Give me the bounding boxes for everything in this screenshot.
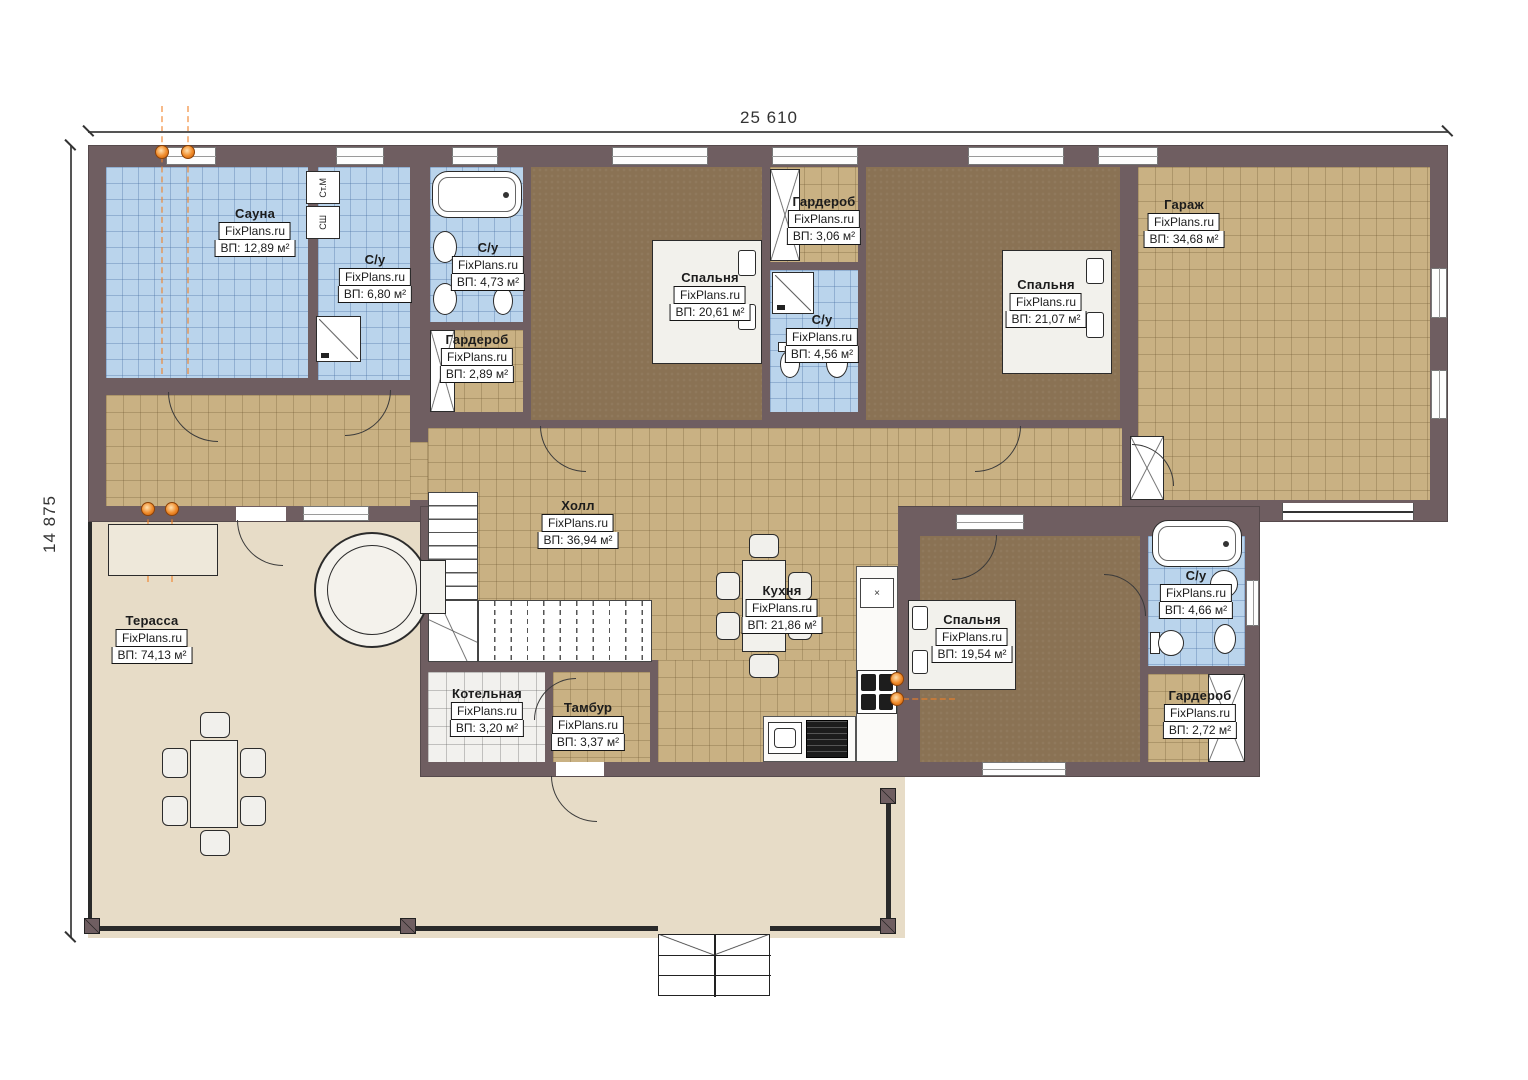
terrace-railing <box>88 522 92 934</box>
area-box: ВП: 4,73 м² <box>451 274 525 291</box>
step-arrow <box>658 934 714 955</box>
window <box>1246 580 1259 626</box>
room-name: Гараж <box>1144 197 1225 212</box>
room-label-kitchen: Кухня FixPlans.ru ВП: 21,86 м² <box>742 583 823 634</box>
area-box: ВП: 21,07 м² <box>1006 311 1087 328</box>
room-label-bedroom-3: Спальня FixPlans.ru ВП: 19,54 м² <box>932 612 1013 663</box>
room-name: Кухня <box>742 583 823 598</box>
shower-tray <box>772 272 814 314</box>
pillow <box>1086 312 1104 338</box>
dimension-line-left <box>70 145 72 938</box>
area-box: ВП: 3,06 м² <box>787 228 861 245</box>
brand-box: FixPlans.ru <box>788 210 860 228</box>
kitchen-sink <box>768 722 802 754</box>
hot-tub <box>314 532 430 648</box>
window <box>956 514 1024 530</box>
area-box: ВП: 12,89 м² <box>215 240 296 257</box>
brand-box: FixPlans.ru <box>219 222 291 240</box>
area-box: ВП: 3,20 м² <box>450 720 524 737</box>
room-name: Терасса <box>112 613 193 628</box>
chair <box>162 748 188 778</box>
toilet-bowl <box>493 287 513 315</box>
heater-icon <box>890 672 904 686</box>
room-label-su-3: С/у FixPlans.ru ВП: 4,56 м² <box>785 312 859 363</box>
window <box>336 147 384 165</box>
terrace-railing <box>886 798 891 930</box>
room-name: Спальня <box>932 612 1013 627</box>
bathtub <box>432 171 522 218</box>
room-label-wardrobe-2: Гардероб FixPlans.ru ВП: 3,06 м² <box>787 194 861 245</box>
chair <box>200 830 230 856</box>
chair <box>749 654 779 678</box>
room-label-su-4: С/у FixPlans.ru ВП: 4,66 м² <box>1159 568 1233 619</box>
dryer-label: СШ <box>319 215 328 230</box>
area-box: ВП: 3,37 м² <box>551 734 625 751</box>
railing-post <box>880 918 896 934</box>
dimension-height-label: 14 875 <box>40 495 60 553</box>
room-name: Котельная <box>450 686 524 701</box>
area-box: ВП: 19,54 м² <box>932 646 1013 663</box>
window <box>1098 147 1158 165</box>
room-label-bedroom-1: Спальня FixPlans.ru ВП: 20,61 м² <box>670 270 751 321</box>
heater-icon <box>165 502 179 516</box>
brand-box: FixPlans.ru <box>746 599 818 617</box>
brand-box: FixPlans.ru <box>451 702 523 720</box>
brand-box: FixPlans.ru <box>786 328 858 346</box>
room-label-garage: Гараж FixPlans.ru ВП: 34,68 м² <box>1144 197 1225 248</box>
chair <box>749 534 779 558</box>
room-label-sauna: Сауна FixPlans.ru ВП: 12,89 м² <box>215 206 296 257</box>
stairs-upper-flight <box>478 600 652 662</box>
room-name: С/у <box>785 312 859 327</box>
room-label-su-1: С/у FixPlans.ru ВП: 6,80 м² <box>338 252 412 303</box>
window <box>1431 268 1447 318</box>
heater-icon <box>155 145 169 159</box>
room-name: Гардероб <box>787 194 861 209</box>
brand-box: FixPlans.ru <box>1164 704 1236 722</box>
pillow <box>1086 258 1104 284</box>
area-box: ВП: 2,89 м² <box>440 366 514 383</box>
area-box: ВП: 4,56 м² <box>785 346 859 363</box>
brand-box: FixPlans.ru <box>936 628 1008 646</box>
shower-tray <box>316 316 361 362</box>
chair <box>240 748 266 778</box>
chair <box>716 612 740 640</box>
area-box: ВП: 6,80 м² <box>338 286 412 303</box>
room-label-boiler: Котельная FixPlans.ru ВП: 3,20 м² <box>450 686 524 737</box>
brand-box: FixPlans.ru <box>542 514 614 532</box>
terrace-floor <box>420 777 905 938</box>
window <box>1431 370 1447 419</box>
dishwasher <box>806 720 848 758</box>
window <box>968 147 1064 165</box>
door-opening <box>236 507 286 521</box>
planter <box>108 524 218 576</box>
room-label-hall: Холл FixPlans.ru ВП: 36,94 м² <box>538 498 619 549</box>
room-name: Спальня <box>670 270 751 285</box>
brand-box: FixPlans.ru <box>452 256 524 274</box>
area-box: ВП: 74,13 м² <box>112 647 193 664</box>
brand-box: FixPlans.ru <box>116 629 188 647</box>
room-name: С/у <box>338 252 412 267</box>
bathtub <box>1152 520 1242 567</box>
pillow <box>912 650 928 674</box>
washer-box: Ст.М <box>306 171 340 204</box>
room-label-tambur: Тамбур FixPlans.ru ВП: 3,37 м² <box>551 700 625 751</box>
window <box>982 762 1066 776</box>
room-name: Холл <box>538 498 619 513</box>
brand-box: FixPlans.ru <box>339 268 411 286</box>
brand-box: FixPlans.ru <box>441 348 513 366</box>
room-name: С/у <box>451 240 525 255</box>
room-label-su-2: С/у FixPlans.ru ВП: 4,73 м² <box>451 240 525 291</box>
heater-icon <box>141 502 155 516</box>
chair <box>716 572 740 600</box>
dimension-width-label: 25 610 <box>740 108 798 128</box>
brand-box: FixPlans.ru <box>552 716 624 734</box>
room-label-wardrobe-1: Гардероб FixPlans.ru ВП: 2,89 м² <box>440 332 514 383</box>
chair <box>240 796 266 826</box>
dining-table <box>190 740 238 828</box>
heater-line <box>903 698 955 700</box>
window <box>612 147 708 165</box>
step-arrow <box>714 934 770 955</box>
window <box>452 147 498 165</box>
microwave: × <box>860 578 894 608</box>
heater-icon <box>181 145 195 159</box>
area-box: ВП: 36,94 м² <box>538 532 619 549</box>
window <box>303 506 369 521</box>
railing-post <box>84 918 100 934</box>
railing-post <box>400 918 416 934</box>
hot-tub-step <box>420 560 446 614</box>
washer-label: Ст.М <box>319 178 328 198</box>
heater-icon <box>890 692 904 706</box>
brand-box: FixPlans.ru <box>674 286 746 304</box>
toilet-bowl <box>1158 630 1184 656</box>
room-name: Сауна <box>215 206 296 221</box>
room-label-bedroom-2: Спальня FixPlans.ru ВП: 21,07 м² <box>1006 277 1087 328</box>
terrace-railing <box>92 926 658 931</box>
floor-plan: 25 610 14 875 <box>0 0 1528 1080</box>
room-label-wardrobe-3: Гардероб FixPlans.ru ВП: 2,72 м² <box>1163 688 1237 739</box>
pillow <box>912 606 928 630</box>
railing-post <box>880 788 896 804</box>
chair <box>162 796 188 826</box>
window <box>772 147 858 165</box>
sauna-floor <box>106 167 308 378</box>
area-box: ВП: 2,72 м² <box>1163 722 1237 739</box>
garage-gate <box>1282 503 1414 520</box>
room-name: Гардероб <box>1163 688 1237 703</box>
brand-box: FixPlans.ru <box>1010 293 1082 311</box>
room-label-terrace: Терасса FixPlans.ru ВП: 74,13 м² <box>112 613 193 664</box>
dimension-line-top <box>88 131 1448 133</box>
corridor-opening-floor <box>410 442 428 500</box>
brand-box: FixPlans.ru <box>1148 213 1220 231</box>
room-name: Гардероб <box>440 332 514 347</box>
sink <box>1214 624 1236 654</box>
area-box: ВП: 21,86 м² <box>742 617 823 634</box>
room-name: С/у <box>1159 568 1233 583</box>
room-name: Спальня <box>1006 277 1087 292</box>
door-opening <box>556 762 604 776</box>
area-box: ВП: 4,66 м² <box>1159 602 1233 619</box>
area-box: ВП: 34,68 м² <box>1144 231 1225 248</box>
dryer-box: СШ <box>306 206 340 239</box>
room-name: Тамбур <box>551 700 625 715</box>
terrace-railing <box>770 926 890 931</box>
chair <box>200 712 230 738</box>
brand-box: FixPlans.ru <box>1160 584 1232 602</box>
area-box: ВП: 20,61 м² <box>670 304 751 321</box>
